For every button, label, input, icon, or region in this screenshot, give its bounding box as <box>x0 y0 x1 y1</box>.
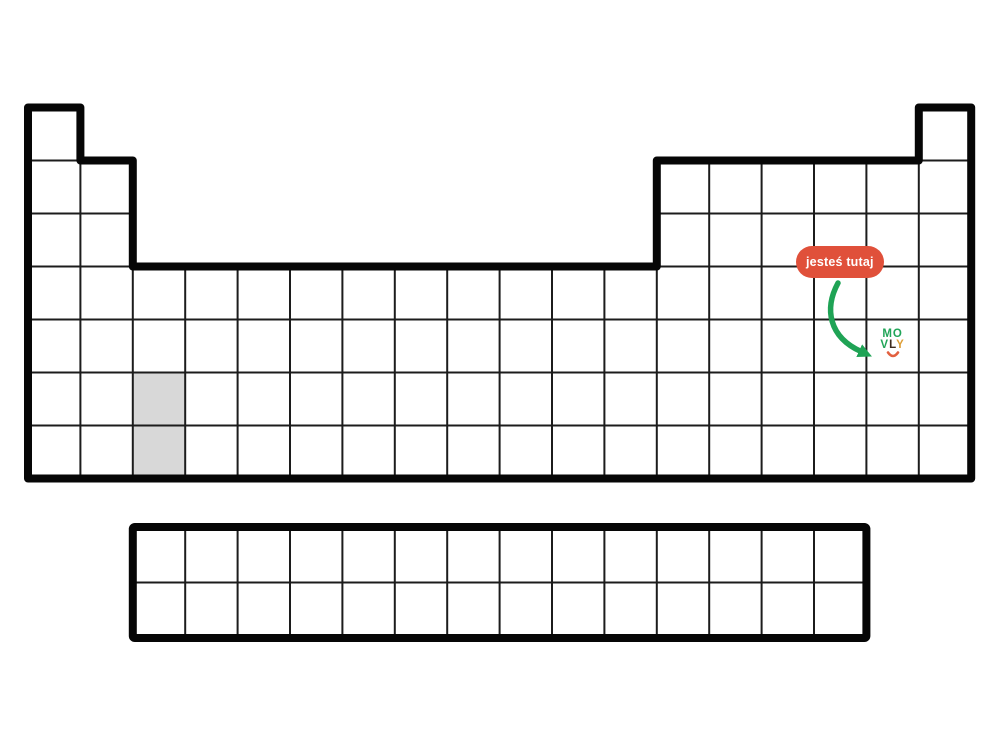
element-cell <box>657 214 709 267</box>
element-cell <box>709 373 761 426</box>
element-cell <box>709 426 761 479</box>
periodic-table <box>0 0 1000 750</box>
element-cell <box>604 267 656 320</box>
f-block-cell <box>447 583 499 639</box>
element-cell <box>133 320 185 373</box>
element-cell <box>395 320 447 373</box>
element-cell <box>552 426 604 479</box>
f-block-cell <box>133 583 185 639</box>
element-cell <box>919 373 971 426</box>
f-block-cell <box>290 583 342 639</box>
element-cell <box>919 161 971 214</box>
element-cell <box>657 267 709 320</box>
element-cell <box>28 161 80 214</box>
element-cell <box>814 373 866 426</box>
f-block-cell <box>395 527 447 583</box>
element-cell <box>342 426 394 479</box>
element-cell <box>604 373 656 426</box>
element-cell <box>709 320 761 373</box>
f-block-cell <box>657 527 709 583</box>
element-cell <box>290 373 342 426</box>
element-cell <box>80 214 132 267</box>
f-block-cell <box>447 527 499 583</box>
element-cell <box>395 426 447 479</box>
element-cell <box>185 373 237 426</box>
element-cell <box>500 426 552 479</box>
element-cell <box>657 320 709 373</box>
you-are-here-badge: jesteś tutaj <box>796 246 884 278</box>
element-cell <box>866 426 918 479</box>
f-block-cell <box>762 527 814 583</box>
f-block-cell <box>709 583 761 639</box>
element-cell <box>185 426 237 479</box>
highlighted-cell <box>133 373 185 426</box>
f-block-cell <box>709 527 761 583</box>
element-cell <box>185 320 237 373</box>
element-cell <box>28 320 80 373</box>
element-cell <box>395 373 447 426</box>
element-cell <box>80 161 132 214</box>
element-cell <box>866 161 918 214</box>
f-block-cell <box>500 583 552 639</box>
element-cell <box>919 267 971 320</box>
element-cell <box>290 426 342 479</box>
f-block-cell <box>500 527 552 583</box>
element-cell <box>814 161 866 214</box>
highlighted-cell <box>133 426 185 479</box>
element-cell <box>447 373 499 426</box>
element-cell <box>552 320 604 373</box>
element-cell <box>238 320 290 373</box>
element-cell <box>290 320 342 373</box>
f-block-cell <box>762 583 814 639</box>
element-cell <box>709 214 761 267</box>
f-block-cell <box>814 583 866 639</box>
element-cell <box>762 161 814 214</box>
element-cell <box>342 373 394 426</box>
element-cell <box>552 373 604 426</box>
element-cell <box>28 267 80 320</box>
element-cell <box>657 426 709 479</box>
element-cell <box>919 426 971 479</box>
element-cell <box>604 320 656 373</box>
f-block-cell <box>238 583 290 639</box>
logo-letter: Y <box>896 339 905 351</box>
element-cell <box>447 426 499 479</box>
f-block-cell <box>552 527 604 583</box>
element-cell <box>342 320 394 373</box>
element-cell <box>238 426 290 479</box>
element-cell <box>657 373 709 426</box>
f-block-cell <box>395 583 447 639</box>
element-cell <box>866 373 918 426</box>
element-cell <box>80 426 132 479</box>
element-cell <box>500 267 552 320</box>
worksheet: jesteś tutaj MO VLY <box>0 0 1000 750</box>
f-block-cell <box>657 583 709 639</box>
element-cell <box>28 426 80 479</box>
element-cell <box>814 426 866 479</box>
element-cell <box>552 267 604 320</box>
logo-letter: V <box>880 339 889 351</box>
element-cell <box>80 267 132 320</box>
logo-line-2: VLY <box>871 340 915 351</box>
element-cell <box>447 267 499 320</box>
movly-logo: MO VLY <box>871 329 915 360</box>
f-block-cell <box>604 583 656 639</box>
logo-smile-icon <box>885 351 901 360</box>
element-cell <box>604 426 656 479</box>
element-cell <box>447 320 499 373</box>
element-cell <box>80 320 132 373</box>
element-cell <box>762 320 814 373</box>
element-cell <box>342 267 394 320</box>
element-cell <box>919 320 971 373</box>
element-cell <box>814 320 866 373</box>
f-block-cell <box>552 583 604 639</box>
element-cell <box>709 267 761 320</box>
element-cell <box>28 373 80 426</box>
f-block-cell <box>604 527 656 583</box>
f-block-cell <box>342 583 394 639</box>
element-cell <box>500 320 552 373</box>
element-cell <box>290 267 342 320</box>
element-cell <box>500 373 552 426</box>
element-cell <box>395 267 447 320</box>
element-cell <box>28 108 80 161</box>
element-cell <box>133 267 185 320</box>
element-cell <box>762 373 814 426</box>
element-cell <box>28 214 80 267</box>
element-cell <box>80 373 132 426</box>
element-cell <box>919 214 971 267</box>
element-cell <box>238 267 290 320</box>
f-block-cell <box>133 527 185 583</box>
f-block-cell <box>814 527 866 583</box>
f-block-cell <box>238 527 290 583</box>
f-block-cell <box>185 583 237 639</box>
f-block-cell <box>342 527 394 583</box>
f-block-cell <box>290 527 342 583</box>
f-block-cell <box>185 527 237 583</box>
element-cell <box>185 267 237 320</box>
element-cell <box>919 108 971 161</box>
element-cell <box>657 161 709 214</box>
element-cell <box>762 426 814 479</box>
element-cell <box>238 373 290 426</box>
element-cell <box>709 161 761 214</box>
